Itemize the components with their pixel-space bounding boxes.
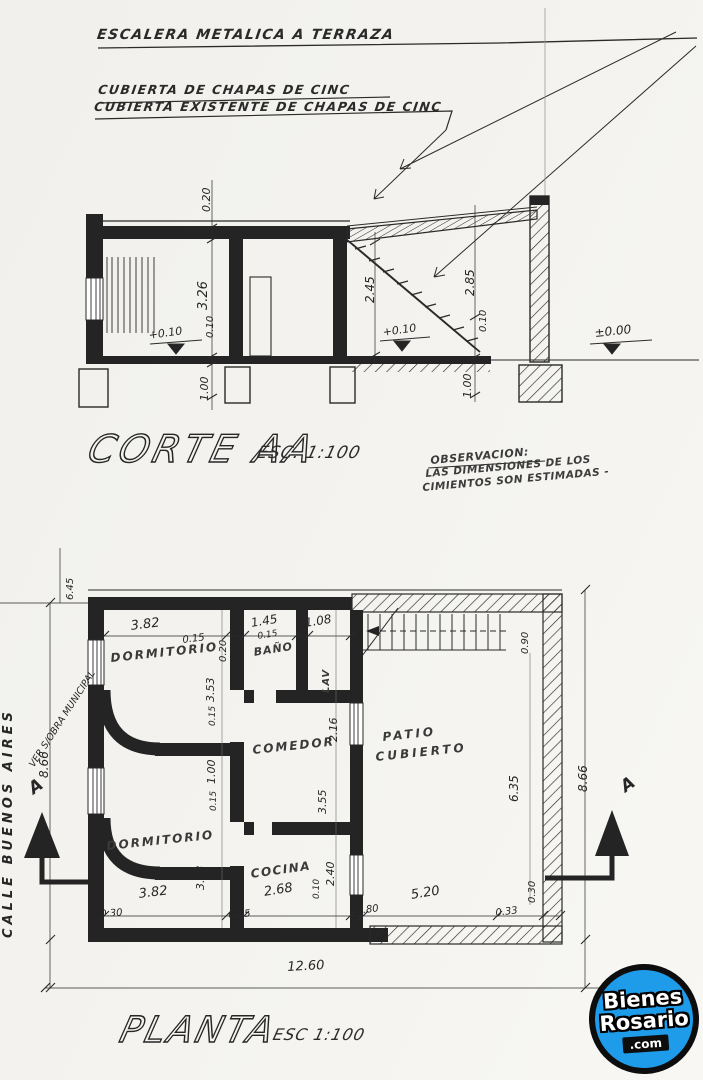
room-label-laundry: LAV — [322, 669, 332, 693]
logo-line2: Rosario — [599, 1005, 690, 1035]
section-shading — [107, 257, 154, 333]
dim-slab: 0.20 — [201, 188, 212, 213]
dim-total-width: 12.60 — [287, 959, 325, 974]
plan-wall-h4 — [272, 822, 362, 835]
foundation-3 — [330, 367, 355, 403]
dim-wall-020: 0.20 — [219, 640, 229, 662]
dim-b015: 0.15 — [228, 909, 251, 921]
plan-title: PLANTA — [116, 1009, 281, 1051]
dim-bed1-height: 3.53 — [205, 678, 216, 703]
street-label: CALLE BUENOS AIRES — [2, 708, 15, 938]
callout-roof-new: CUBIERTA DE CHAPAS DE CINC — [97, 84, 351, 97]
plan-left-wall — [88, 597, 104, 640]
dim-stair-width: 0.90 — [521, 632, 531, 654]
level-mark-left — [150, 340, 202, 354]
leader-stair-2 — [434, 46, 696, 277]
plan-curved-wall-1 — [104, 690, 160, 749]
leader-roof — [374, 130, 446, 199]
dim-foundation-right: 1.00 — [462, 374, 473, 399]
dim-dining-a: 2.16 — [328, 718, 339, 743]
section-roof-slab — [95, 226, 350, 239]
plan-bottom-wall-existing — [370, 926, 562, 944]
dim-room-height: 3.26 — [197, 281, 210, 310]
dim-b030: 0.30 — [100, 908, 123, 920]
dim-setback: 6.45 — [66, 578, 76, 600]
foundation-4 — [519, 365, 562, 402]
dim-floor-slab: 0.10 — [206, 316, 216, 338]
dim-wall-010: 0.10 — [313, 879, 322, 899]
dim-dining-b: 3.55 — [317, 790, 328, 815]
plan-stair — [356, 608, 506, 664]
plan-dim-chains — [222, 610, 530, 928]
callout-roof-existing: CUBIERTA EXISTENTE DE CHAPAS DE CINC — [93, 101, 443, 114]
section-wall-3 — [333, 228, 347, 358]
plan-top-wall — [96, 597, 352, 610]
plan-wall-h3 — [276, 690, 360, 703]
dim-kitchen-height: 2.40 — [325, 862, 336, 887]
dim-bed2-width: 3.82 — [138, 884, 168, 900]
section-sloped-roof — [347, 210, 537, 242]
section-scale: ESC. 1:100 — [255, 443, 363, 463]
section-right-wall — [530, 196, 549, 362]
dim-bed1-width: 3.82 — [130, 616, 160, 632]
section-floor — [86, 356, 491, 364]
dim-hall: 1.00 — [206, 760, 217, 785]
section-left-wall — [86, 214, 103, 278]
plan-wall-w3 — [350, 610, 363, 703]
dim-right-total: 8.66 — [577, 765, 589, 792]
plan-bottom-wall — [88, 928, 388, 942]
dim-foundation-left: 1.00 — [199, 377, 210, 402]
level-mark-patio — [380, 337, 430, 351]
dim-patio-wall: 0.30 — [528, 881, 538, 903]
plan-scale: ESC 1:100 — [271, 1025, 367, 1044]
section-mid-wall — [229, 239, 243, 358]
plan-wall-w1 — [230, 610, 244, 690]
level-ground: ±0.00 — [594, 323, 632, 339]
foundation-2 — [225, 367, 250, 403]
dim-patio-left: 2.45 — [364, 276, 376, 303]
plan-right-wall-existing — [543, 594, 562, 942]
dim-patio-floor: 0.10 — [479, 310, 489, 332]
section-door — [250, 277, 271, 356]
dim-patio-right: 2.85 — [464, 269, 476, 296]
dim-patio-height: 6.35 — [508, 775, 520, 802]
level-mark-ground — [590, 340, 652, 354]
callout-stair: ESCALERA METALICA A TERRAZA — [96, 28, 395, 42]
section-mark-left — [24, 812, 95, 882]
dim-wall-015d: 0.15 — [210, 791, 219, 811]
plan-top-wall-existing — [352, 594, 562, 612]
dim-left-total: 8.66 — [38, 751, 50, 778]
dim-wall-015c: 0.15 — [209, 706, 218, 726]
dim-bed2-height: 3.53 — [195, 866, 206, 891]
logo-line3: .com — [622, 1034, 669, 1053]
foundation-1 — [79, 369, 108, 407]
blueprint-sheet: CORTE AA ESC. 1:100 PLANTA ESC 1:100 — [0, 0, 703, 1080]
section-drawing: CORTE AA ESC. 1:100 PLANTA ESC 1:100 — [79, 8, 699, 1051]
